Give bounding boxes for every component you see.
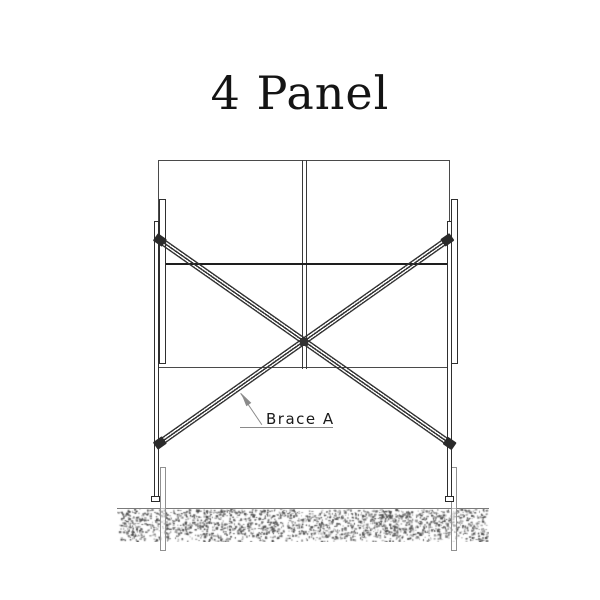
left-buried-tube — [160, 467, 167, 551]
leader-arrow-icon — [239, 391, 252, 406]
brace-connector — [443, 437, 457, 451]
ground-texture — [117, 509, 489, 542]
left-post-foot — [151, 496, 161, 503]
diagram-title: 4 Panel — [0, 70, 600, 116]
diagram-canvas: 4 Panel Brace A — [0, 0, 600, 600]
brace-label: Brace A — [266, 410, 335, 428]
right-post-foot — [445, 496, 455, 503]
left-panel-tube — [159, 199, 166, 364]
right-panel-tube — [451, 199, 458, 364]
brace-center-pin — [300, 338, 308, 346]
